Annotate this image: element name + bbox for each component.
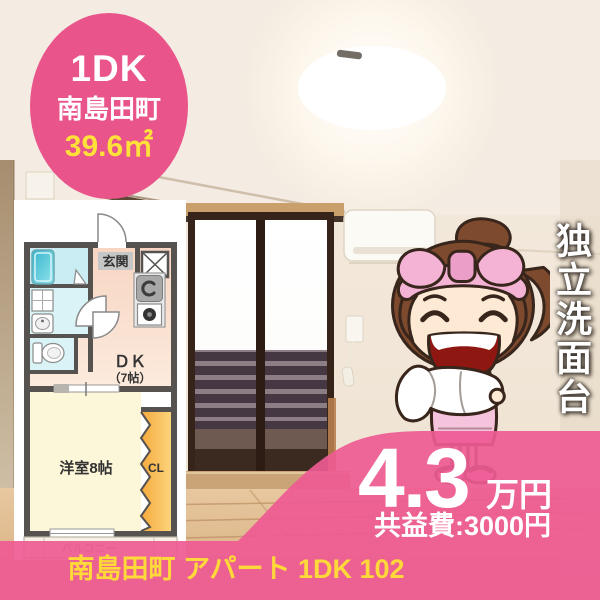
- badge-area: 39.6㎡: [65, 131, 153, 163]
- listing-ad: 玄関: [0, 0, 600, 600]
- price-amount: 4.3: [358, 436, 469, 520]
- maintenance-fee: 共益費:3000円: [374, 513, 551, 540]
- price-unit: 万円: [486, 478, 552, 511]
- property-badge: 1DK 南島田町 39.6㎡: [30, 13, 188, 199]
- listing-title: 南島田町 アパート 1DK 102: [67, 555, 404, 585]
- badge-town: 南島田町: [57, 96, 161, 123]
- badge-layout: 1DK: [70, 50, 147, 89]
